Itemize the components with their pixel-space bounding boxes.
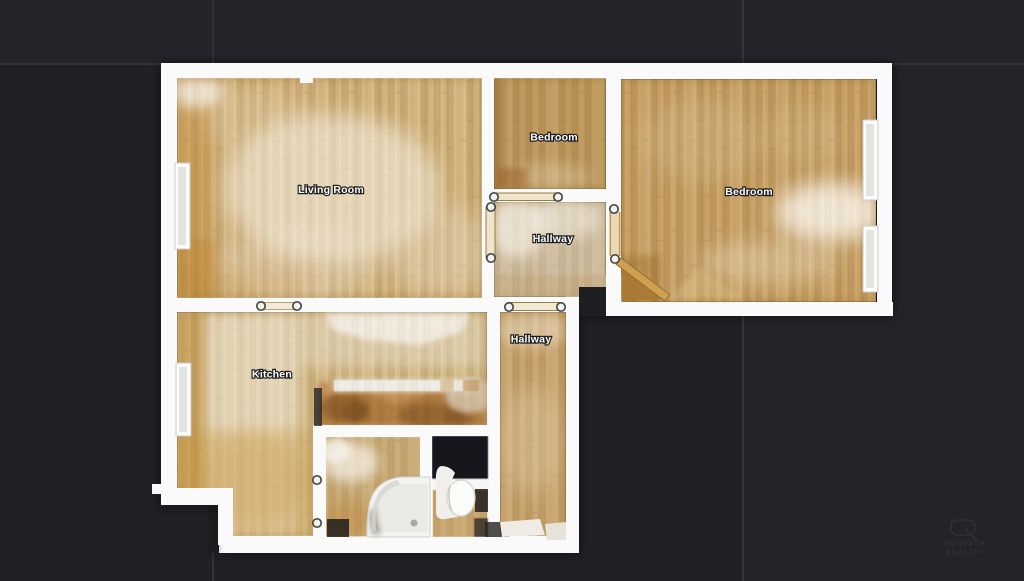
svg-text:Bedroom: Bedroom — [530, 131, 578, 143]
svg-text:Bedroom: Bedroom — [725, 186, 773, 198]
svg-text:Hallway: Hallway — [511, 333, 552, 345]
svg-text:Hallway: Hallway — [533, 233, 574, 245]
svg-text:Living Room: Living Room — [298, 184, 364, 196]
svg-text:REALITY: REALITY — [945, 550, 984, 557]
svg-text:GOSPACE: GOSPACE — [944, 541, 986, 548]
svg-text:Kitchen: Kitchen — [252, 368, 292, 380]
